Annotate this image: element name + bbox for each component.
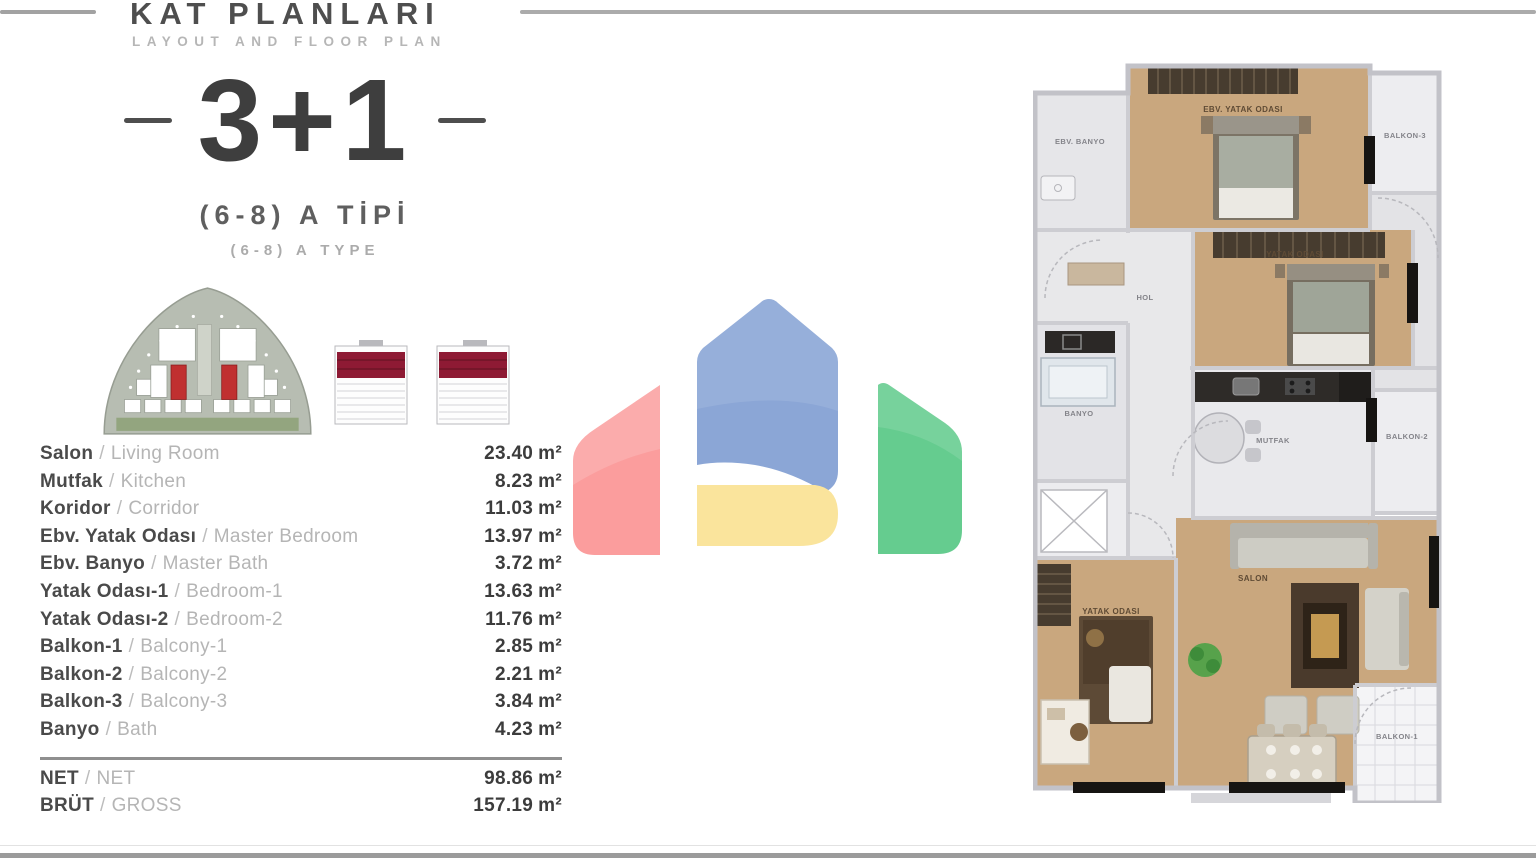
room-name-tr: Yatak Odası-2 [40, 609, 169, 631]
room-label-yatak-odasi-2: YATAK ODASI [1266, 250, 1324, 259]
room-name-en: Living Room [111, 443, 220, 465]
room-name-en: Balcony-2 [140, 664, 227, 686]
logo-yellow-shape [697, 485, 838, 546]
room-label-banyo: BANYO [1064, 409, 1093, 418]
page-title: KAT PLANLARI [130, 0, 441, 32]
total-row-net: NET / NET 98.86m² [40, 768, 562, 795]
room-label-ebv-banyo: EBV. BANYO [1055, 137, 1105, 146]
separator: / [99, 443, 105, 465]
separator: / [109, 471, 115, 493]
room-area-value: 2.85m² [495, 636, 562, 658]
area-row: Yatak Odası-2 / Bedroom-2 11.76m² [40, 609, 562, 637]
floor-plan-brochure-page: KAT PLANLARI LAYOUT AND FLOOR PLAN 3+1 (… [0, 0, 1536, 864]
room-name-en: Master Bath [163, 553, 269, 575]
area-row: Balkon-2 / Balcony-2 2.21m² [40, 664, 562, 692]
room-label-hol: HOL [1136, 293, 1153, 302]
room-name-en: Bedroom-1 [186, 581, 283, 603]
total-name-tr: NET [40, 768, 79, 790]
building-elevation-diagram [333, 338, 511, 426]
highlighted-unit-left [171, 365, 186, 399]
area-row: Salon / Living Room 23.40m² [40, 443, 562, 471]
room-name-en: Balcony-1 [140, 636, 227, 658]
room-area-value: 3.84m² [495, 691, 562, 713]
total-row-gross: BRÜT / GROSS 157.19m² [40, 795, 562, 822]
total-area-value: 98.86m² [484, 768, 562, 790]
table-divider [40, 757, 562, 760]
room-name-tr: Koridor [40, 498, 111, 520]
room-name-tr: Banyo [40, 719, 100, 741]
area-row: Banyo / Bath 4.23m² [40, 719, 562, 747]
separator: / [106, 719, 112, 741]
room-label-yatak-odasi-1: YATAK ODASI [1082, 607, 1140, 616]
area-row: Balkon-1 / Balcony-1 2.85m² [40, 636, 562, 664]
room-name-tr: Ebv. Banyo [40, 553, 145, 575]
room-name-tr: Balkon-2 [40, 664, 123, 686]
room-name-tr: Ebv. Yatak Odası [40, 526, 196, 548]
separator: / [151, 553, 157, 575]
area-row: Mutfak / Kitchen 8.23m² [40, 471, 562, 499]
room-label-balkon-1: BALKON-1 [1376, 732, 1418, 741]
totals-table: NET / NET 98.86m² BRÜT / GROSS 157.19m² [40, 768, 562, 822]
room-name-tr: Balkon-1 [40, 636, 123, 658]
room-label-salon: SALON [1238, 574, 1268, 583]
site-diagrams [100, 280, 530, 440]
floor-plan: EBV. BANYO EBV. YATAK ODASI BALKON-3 HOL… [1033, 58, 1445, 803]
room-name-en: Bath [117, 719, 157, 741]
separator: / [202, 526, 208, 548]
room-name-tr: Yatak Odası-1 [40, 581, 169, 603]
area-row: Balkon-3 / Balcony-3 3.84m² [40, 691, 562, 719]
header-rule-left [0, 10, 96, 14]
room-name-tr: Salon [40, 443, 93, 465]
total-name-en: NET [97, 768, 136, 790]
separator: / [85, 768, 91, 790]
room-label-ebv-yatak-odasi: EBV. YATAK ODASI [1203, 105, 1283, 114]
logo-watermark [565, 293, 965, 563]
room-area-value: 13.97m² [484, 526, 562, 548]
separator: / [175, 581, 181, 603]
separator: / [129, 691, 135, 713]
separator: / [175, 609, 181, 631]
elevation-highlight-band-right [439, 352, 507, 378]
room-name-en: Master Bedroom [214, 526, 359, 548]
room-name-en: Bedroom-2 [186, 609, 283, 631]
room-area-value: 2.21m² [495, 664, 562, 686]
room-area-value: 13.63m² [484, 581, 562, 603]
elevation-highlight-band-left [337, 352, 405, 378]
room-area-value: 23.40m² [484, 443, 562, 465]
room-name-tr: Mutfak [40, 471, 103, 493]
unit-variant-tr: (6-8) A TİPİ [85, 200, 525, 231]
room-label-balkon-2: BALKON-2 [1386, 432, 1428, 441]
highlighted-unit-right [222, 365, 237, 399]
page-subtitle: LAYOUT AND FLOOR PLAN [132, 34, 447, 49]
area-row: Ebv. Yatak Odası / Master Bedroom 13.97m… [40, 526, 562, 554]
room-label-balkon-3: BALKON-3 [1384, 131, 1426, 140]
separator: / [129, 636, 135, 658]
separator: / [129, 664, 135, 686]
room-name-en: Corridor [128, 498, 199, 520]
total-name-en: GROSS [112, 795, 182, 817]
room-label-mutfak: MUTFAK [1256, 436, 1290, 445]
dash-left [124, 118, 172, 123]
separator: / [100, 795, 106, 817]
room-area-value: 11.03m² [485, 498, 562, 520]
footer-rule-dark [0, 853, 1536, 858]
unit-type-row: 3+1 [85, 62, 525, 178]
room-area-value: 11.76m² [485, 609, 562, 631]
dash-right [438, 118, 486, 123]
unit-variant-en: (6-8) A TYPE [85, 242, 525, 259]
room-name-tr: Balkon-3 [40, 691, 123, 713]
shaft [1041, 490, 1107, 552]
area-table: Salon / Living Room 23.40m² Mutfak / Kit… [40, 443, 562, 747]
footer-rule-light [0, 845, 1536, 846]
header-rule-right [520, 10, 1536, 14]
unit-rooms: 3+1 [198, 62, 413, 178]
bath-fixtures [1041, 331, 1115, 406]
room-area-value: 8.23m² [495, 471, 562, 493]
room-area-value: 3.72m² [495, 553, 562, 575]
area-row: Yatak Odası-1 / Bedroom-1 13.63m² [40, 581, 562, 609]
room-name-en: Balcony-3 [140, 691, 227, 713]
site-plan-diagram [100, 282, 315, 440]
total-name-tr: BRÜT [40, 795, 94, 817]
room-name-en: Kitchen [121, 471, 186, 493]
area-row: Ebv. Banyo / Master Bath 3.72m² [40, 553, 562, 581]
area-row: Koridor / Corridor 11.03m² [40, 498, 562, 526]
total-area-value: 157.19m² [473, 795, 562, 817]
separator: / [117, 498, 123, 520]
room-area-value: 4.23m² [495, 719, 562, 741]
